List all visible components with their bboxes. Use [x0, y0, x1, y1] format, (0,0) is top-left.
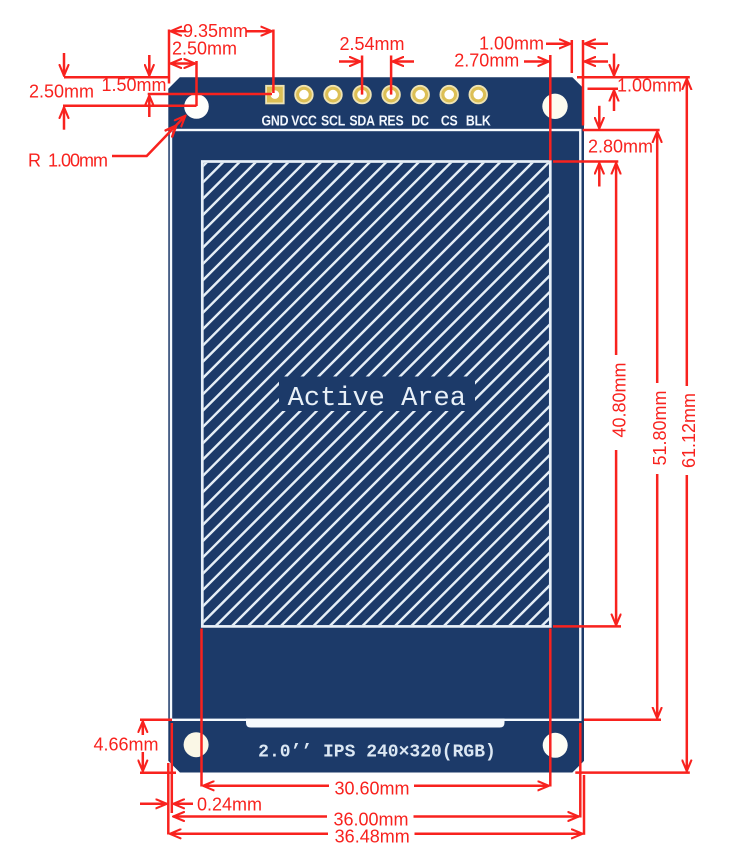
- svg-text:Active Area: Active Area: [288, 384, 466, 414]
- svg-text:BLK: BLK: [466, 112, 491, 128]
- svg-text:SCL: SCL: [321, 112, 345, 128]
- svg-text:2.50mm: 2.50mm: [172, 38, 237, 58]
- svg-text:R 1.00mm: R 1.00mm: [28, 150, 107, 170]
- svg-text:CS: CS: [441, 112, 458, 128]
- svg-text:SDA: SDA: [349, 112, 375, 128]
- svg-text:4.66mm: 4.66mm: [93, 735, 158, 755]
- svg-text:VCC: VCC: [291, 112, 317, 128]
- svg-text:1.50mm: 1.50mm: [101, 75, 166, 95]
- svg-text:DC: DC: [411, 112, 429, 128]
- svg-text:GND: GND: [261, 112, 288, 128]
- svg-text:40.80mm: 40.80mm: [609, 362, 629, 437]
- svg-text:2.0’’ IPS 240×320(RGB): 2.0’’ IPS 240×320(RGB): [258, 743, 496, 763]
- svg-text:36.48mm: 36.48mm: [335, 827, 410, 847]
- svg-text:2.70mm: 2.70mm: [454, 50, 519, 70]
- svg-text:2.50mm: 2.50mm: [29, 81, 94, 101]
- svg-text:1.00mm: 1.00mm: [617, 75, 682, 95]
- svg-text:51.80mm: 51.80mm: [650, 390, 670, 465]
- svg-text:0.24mm: 0.24mm: [197, 794, 262, 814]
- svg-text:61.12mm: 61.12mm: [679, 393, 699, 468]
- svg-text:RES: RES: [379, 112, 404, 128]
- svg-text:2.80mm: 2.80mm: [588, 136, 653, 156]
- svg-text:2.54mm: 2.54mm: [339, 34, 404, 54]
- svg-text:30.60mm: 30.60mm: [334, 778, 409, 798]
